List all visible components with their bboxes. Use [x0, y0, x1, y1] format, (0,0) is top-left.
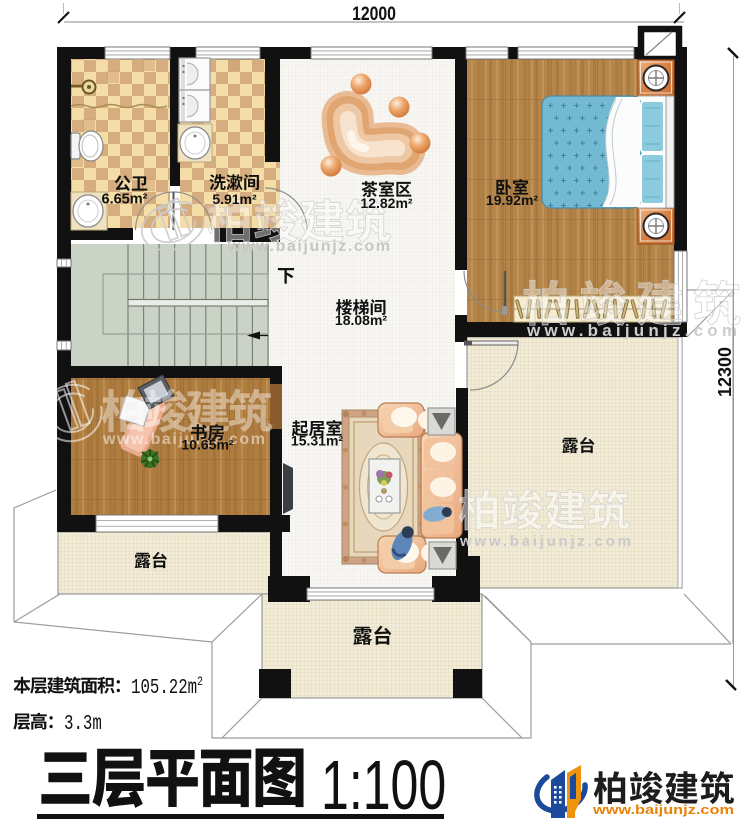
svg-text:3.3m: 3.3m: [64, 712, 102, 736]
svg-text:105.22m2: 105.22m2: [131, 675, 203, 700]
svg-text:10.65m²: 10.65m²: [181, 437, 233, 453]
svg-text:19.92m²: 19.92m²: [486, 192, 538, 208]
svg-text:12300: 12300: [715, 347, 735, 397]
svg-text:www.baijunjz.com: www.baijunjz.com: [592, 803, 734, 817]
svg-text:1:100: 1:100: [321, 746, 446, 824]
svg-text:12000: 12000: [352, 3, 396, 25]
svg-text:5.91m²: 5.91m²: [212, 191, 257, 207]
svg-text:6.65m²: 6.65m²: [102, 192, 148, 208]
svg-text:15.31m²: 15.31m²: [291, 433, 343, 449]
svg-text:18.08m²: 18.08m²: [335, 312, 387, 328]
svg-text:12.82m²: 12.82m²: [360, 195, 412, 211]
